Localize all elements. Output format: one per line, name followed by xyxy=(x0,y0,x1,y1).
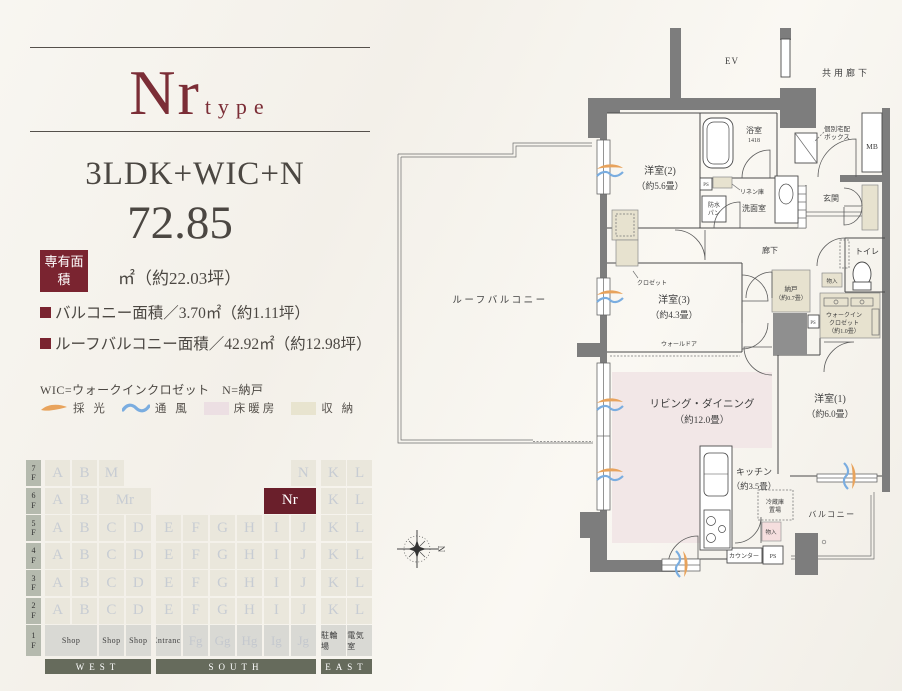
stack-block-east: 駐輪場電気室 xyxy=(321,625,372,656)
floor-label: 6F xyxy=(26,488,41,514)
stack-cell: 電気室 xyxy=(347,625,372,656)
wic-size: （約1.0畳） xyxy=(828,327,860,335)
wic-label-2: クロゼット xyxy=(829,319,859,327)
living-dining-label: リビング・ダイニング xyxy=(650,397,755,410)
wall-door-label: ウォールドア xyxy=(661,340,697,348)
stack-cell: B xyxy=(72,543,97,569)
stack-row: 4FABCDEFGHIJKL xyxy=(26,543,372,569)
stack-cell: C xyxy=(99,570,124,596)
stack-cell: I xyxy=(264,598,289,624)
stack-cell-highlighted: Nr xyxy=(264,488,316,514)
entrance-step xyxy=(806,212,862,216)
stack-cell: B xyxy=(72,570,97,596)
stack-cell: L xyxy=(347,515,372,541)
stack-cell: F xyxy=(183,570,208,596)
bath-size: 1418 xyxy=(748,138,760,144)
unit-type-main: Nr xyxy=(129,57,201,128)
floor-plan: ルーフバルコニー EV 共用廊下 個別宅配 ボックス MB xyxy=(388,26,902,602)
kitchen-counter xyxy=(700,446,732,550)
stack-cell: N xyxy=(291,460,316,486)
floor-label: 5F xyxy=(26,515,41,541)
vanity xyxy=(775,176,798,223)
shoe-cabinet xyxy=(862,185,878,230)
stack-cell: K xyxy=(321,570,346,596)
stack-block-east: KL xyxy=(321,515,372,541)
stack-cell: D xyxy=(126,598,151,624)
nando-size: （約0.7畳） xyxy=(775,294,807,302)
header-rule-bottom xyxy=(30,131,370,132)
roof-balcony-area-text: ルーフバルコニー面積／42.92㎡（約12.98坪） xyxy=(55,332,372,354)
stack-block-west: ABMr xyxy=(45,488,151,514)
stack-cell: Shop xyxy=(126,625,151,656)
stack-block-west: ABCD xyxy=(45,598,151,624)
bedroom1-size: （約6.0畳） xyxy=(806,408,853,419)
roof-balcony-label: ルーフバルコニー xyxy=(452,295,547,306)
stack-cell: I xyxy=(264,570,289,596)
stack-cell: G xyxy=(210,543,235,569)
balcony-label: バルコニー xyxy=(808,510,855,519)
bedroom3-size: （約4.3畳） xyxy=(650,309,697,320)
stack-cell: H xyxy=(237,515,262,541)
stack-cell: M xyxy=(99,460,124,486)
stack-cell: A xyxy=(45,543,70,569)
monoire-kitchen-label: 物入 xyxy=(765,528,777,536)
floor-heating-swatch xyxy=(204,402,229,415)
stack-cell: G xyxy=(210,570,235,596)
stack-block-south: EntranceFgGgHgIgJg xyxy=(156,625,316,656)
stack-row: 2FABCDEFGHIJKL xyxy=(26,598,372,624)
ev-label: EV xyxy=(725,56,739,66)
closet-label: クロゼット xyxy=(637,279,667,287)
stack-cell: K xyxy=(321,515,346,541)
mb-label: MB xyxy=(866,142,878,151)
stack-cell: J xyxy=(291,570,316,596)
stack-block-west: ABCD xyxy=(45,543,151,569)
washroom-label: 洗面室 xyxy=(742,203,766,213)
stack-block-west: ABCD xyxy=(45,570,151,596)
bathtub xyxy=(703,118,733,168)
stack-block-south: EFGHIJ xyxy=(156,543,316,569)
bullet-square-icon xyxy=(40,338,51,349)
area-unit: ㎡（約22.03坪） xyxy=(118,264,241,289)
stack-cell: J xyxy=(291,598,316,624)
stack-cell: A xyxy=(45,598,70,624)
stack-cell: L xyxy=(347,570,372,596)
floor-label: 2F xyxy=(26,598,41,624)
unit-type-suffix: type xyxy=(205,94,271,119)
stack-grid: 7FABMNKL6FABMrNrKL5FABCDEFGHIJKL4FABCDEF… xyxy=(26,460,372,674)
stack-cell: K xyxy=(321,598,346,624)
stack-cell: K xyxy=(321,543,346,569)
stack-cell: E xyxy=(156,598,181,624)
stack-cell: A xyxy=(45,488,70,514)
stack-cell: Jg xyxy=(291,625,316,656)
stack-cell: C xyxy=(99,515,124,541)
stack-cell: L xyxy=(347,598,372,624)
floor-label: 1F xyxy=(26,625,41,656)
direction-bar-south: SOUTH xyxy=(156,659,316,674)
stack-cell: I xyxy=(264,515,289,541)
area-badge-label: 専有面積 xyxy=(45,253,84,288)
stack-cell: D xyxy=(126,543,151,569)
monoire-label: 物入 xyxy=(826,277,838,285)
stack-cell: K xyxy=(321,460,346,486)
direction-row: WESTSOUTHEAST xyxy=(26,659,372,674)
legend-breeze-label: 通 風 xyxy=(155,400,190,416)
floor-heating-area xyxy=(612,372,772,543)
bullet-square-icon xyxy=(40,307,51,318)
stack-cell: C xyxy=(99,543,124,569)
bedroom2-size: （約5.6畳） xyxy=(636,180,683,191)
linen-leader xyxy=(732,184,740,190)
legend-storage-label: 収 納 xyxy=(321,400,356,416)
stack-block-south: N xyxy=(156,460,316,486)
floor-label: 3F xyxy=(26,570,41,596)
stack-block-south: EFGHIJ xyxy=(156,570,316,596)
stack-block-east: KL xyxy=(321,488,372,514)
stack-cell: C xyxy=(99,598,124,624)
stack-cell: J xyxy=(291,515,316,541)
balcony xyxy=(791,492,874,575)
stack-cell: L xyxy=(347,460,372,486)
stack-block-east: KL xyxy=(321,543,372,569)
window xyxy=(597,363,610,510)
stack-cell: 駐輪場 xyxy=(321,625,346,656)
stack-cell: B xyxy=(72,460,97,486)
stack-cell: H xyxy=(237,598,262,624)
bedroom2-label: 洋室(2) xyxy=(644,164,676,177)
floorplan-brochure-page: { "header": { "type_main": "Nr", "type_s… xyxy=(0,0,902,691)
layout-spec: 3LDK+WIC+N xyxy=(30,156,360,193)
stack-cell: Shop xyxy=(45,625,97,656)
daylight-swoosh-icon xyxy=(40,401,68,415)
floor-label: 7F xyxy=(26,460,41,486)
stack-cell: Ig xyxy=(264,625,289,656)
balcony-area-line: バルコニー面積／3.70㎡（約1.11坪） xyxy=(40,303,310,321)
stack-cell: E xyxy=(156,570,181,596)
nando-label: 納戸 xyxy=(785,284,799,293)
stack-row: 6FABMrNrKL xyxy=(26,488,372,514)
stack-cell: E xyxy=(156,543,181,569)
stack-cell: J xyxy=(291,543,316,569)
ps-label-mid: PS xyxy=(810,321,816,326)
stack-row: 3FABCDEFGHIJKL xyxy=(26,570,372,596)
window xyxy=(597,278,610,315)
stack-block-west: ShopShopShop xyxy=(45,625,151,656)
closet-leader xyxy=(633,271,638,278)
stack-cell: H xyxy=(237,543,262,569)
stack-cell: Shop xyxy=(99,625,124,656)
stack-block-south: EFGHIJ xyxy=(156,598,316,624)
stack-cell: F xyxy=(183,543,208,569)
fridge-label-2: 置場 xyxy=(769,506,781,514)
stack-block-east: KL xyxy=(321,460,372,486)
stack-cell: G xyxy=(210,515,235,541)
unit-type-title: Nrtype xyxy=(30,56,370,130)
compass-north-label: N xyxy=(436,546,446,553)
stack-cell: A xyxy=(45,570,70,596)
roof-balcony: ルーフバルコニー xyxy=(398,143,593,443)
floor-label: 4F xyxy=(26,543,41,569)
bath-label: 浴室 xyxy=(746,125,762,135)
washroom-side-cabinet xyxy=(798,186,806,228)
roof-balcony-area-line: ルーフバルコニー面積／42.92㎡（約12.98坪） xyxy=(40,334,372,352)
ps-label-bottom: PS xyxy=(770,554,777,560)
stack-cell: B xyxy=(72,488,97,514)
abbreviation-note: WIC=ウォークインクロゼット N=納戸 xyxy=(40,381,264,398)
kitchen-label: キッチン xyxy=(736,467,772,477)
area-badge: 専有面積 xyxy=(40,250,88,292)
compass-icon: N xyxy=(397,530,446,568)
common-corridor-label: 共用廊下 xyxy=(822,67,870,78)
stack-cell: D xyxy=(126,515,151,541)
legend-daylight-label: 採 光 xyxy=(73,400,108,416)
stack-cell: Hg xyxy=(237,625,262,656)
stack-block-south: Nr xyxy=(156,488,316,514)
stack-cell: F xyxy=(183,598,208,624)
stack-cell: L xyxy=(347,488,372,514)
ev-door xyxy=(781,39,790,77)
area-value: 72.85 xyxy=(30,196,330,250)
shaft xyxy=(773,313,807,355)
stack-cell: Gg xyxy=(210,625,235,656)
stack-cell: D xyxy=(126,570,151,596)
storage-swatch xyxy=(291,402,316,415)
linen-label: リネン庫 xyxy=(740,188,764,196)
bedroom1-label: 洋室(1) xyxy=(814,392,846,405)
wic-label-1: ウォークイン xyxy=(826,311,862,319)
stack-cell: A xyxy=(45,460,70,486)
direction-bar-east: EAST xyxy=(321,659,372,674)
stack-row: 1FShopShopShopEntranceFgGgHgIgJg駐輪場電気室 xyxy=(26,625,372,656)
stack-cell: Entrance xyxy=(156,625,181,656)
stack-cell: G xyxy=(210,598,235,624)
delivery-box: 個別宅配 ボックス xyxy=(795,124,851,163)
stack-cell: H xyxy=(237,570,262,596)
waterproof-pan-label-2: パン xyxy=(708,210,720,217)
waterproof-pan-label-1: 防水 xyxy=(708,201,720,209)
stack-block-south: EFGHIJ xyxy=(156,515,316,541)
kitchen-size: （約3.5畳） xyxy=(732,481,777,491)
legend-floor-heating-label: 床暖房 xyxy=(234,400,278,416)
stack-cell: Mr xyxy=(99,488,151,514)
legend: 採 光 通 風 床暖房 収 納 xyxy=(40,400,370,416)
bedroom3-label: 洋室(3) xyxy=(658,293,690,306)
stack-block-east: KL xyxy=(321,570,372,596)
balcony-area-text: バルコニー面積／3.70㎡（約1.11坪） xyxy=(55,301,310,323)
stack-cell: L xyxy=(347,543,372,569)
stack-cell: A xyxy=(45,515,70,541)
stack-block-west: ABM xyxy=(45,460,151,486)
stack-cell: Fg xyxy=(183,625,208,656)
stack-block-east: KL xyxy=(321,598,372,624)
stack-cell: I xyxy=(264,543,289,569)
direction-bar-west: WEST xyxy=(45,659,151,674)
stack-row: 5FABCDEFGHIJKL xyxy=(26,515,372,541)
breeze-swoosh-icon xyxy=(122,401,150,415)
delivery-box-label-2: ボックス xyxy=(824,133,850,141)
stack-cell: B xyxy=(72,515,97,541)
ps-label-top: PS xyxy=(703,183,709,188)
entrance-label: 玄関 xyxy=(823,193,839,203)
delivery-box-label-1: 個別宅配 xyxy=(824,124,851,133)
stack-cell: B xyxy=(72,598,97,624)
counter-label: カウンター xyxy=(729,552,759,560)
stack-cell: F xyxy=(183,515,208,541)
header-rule-top xyxy=(30,47,370,48)
toilet-label: トイレ xyxy=(855,247,879,256)
stack-block-west: ABCD xyxy=(45,515,151,541)
stack-cell: K xyxy=(321,488,346,514)
living-dining-size: （約12.0畳） xyxy=(675,414,730,426)
stack-cell: E xyxy=(156,515,181,541)
stack-row: 7FABMNKL xyxy=(26,460,372,486)
hallway-label: 廊下 xyxy=(762,245,778,255)
fridge-label-1: 冷蔵庫 xyxy=(766,498,784,506)
